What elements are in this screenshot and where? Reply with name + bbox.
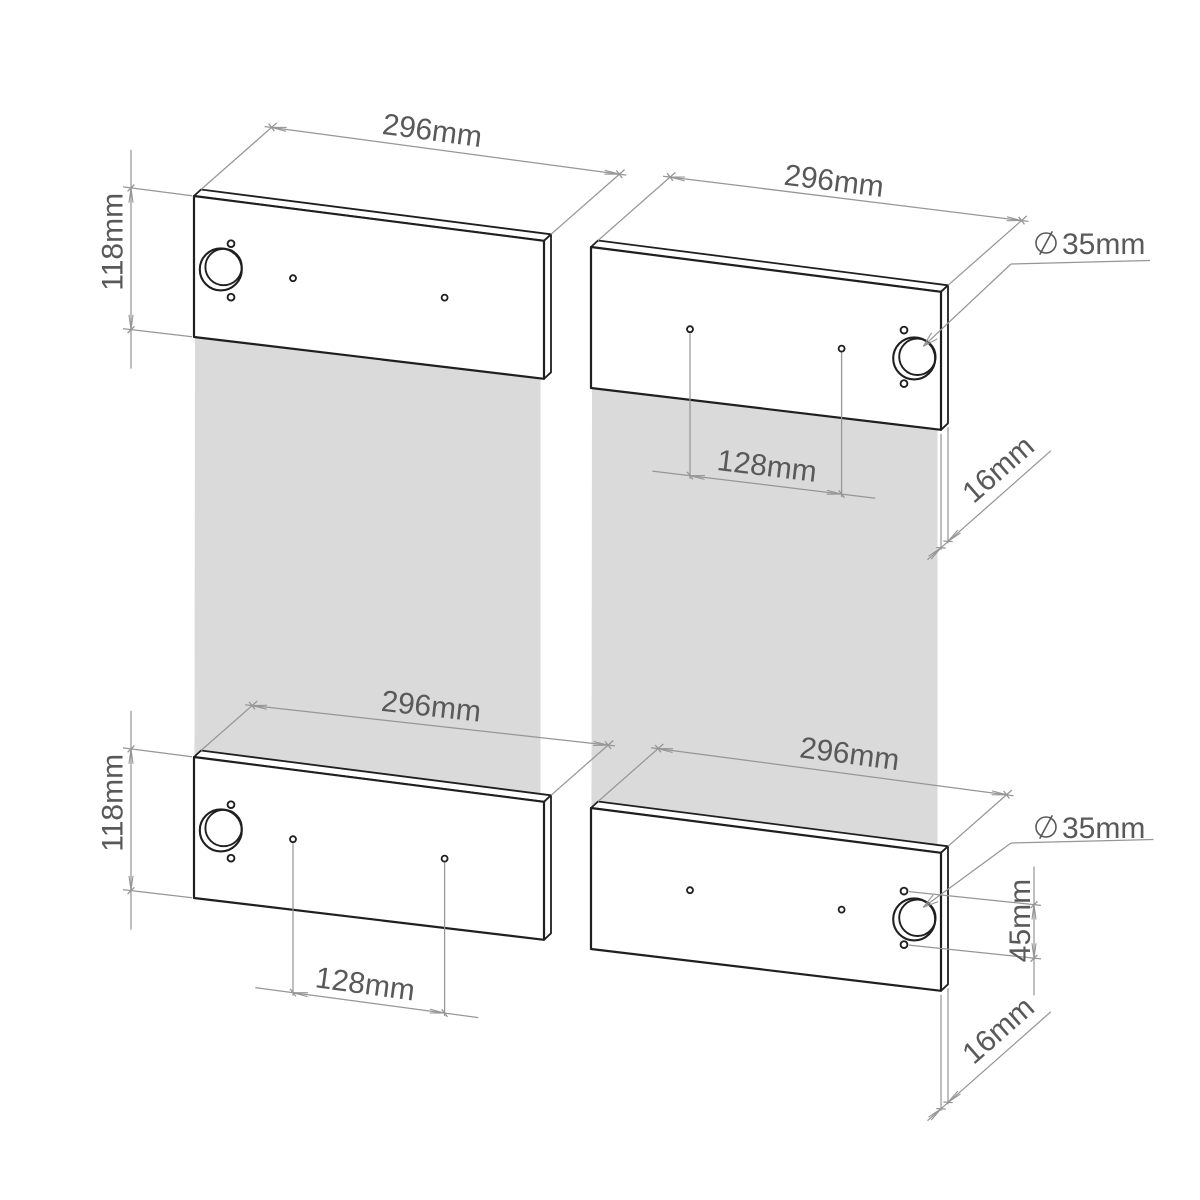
svg-text:118mm: 118mm	[97, 193, 130, 291]
svg-text:35mm: 35mm	[1062, 812, 1145, 845]
svg-text:45mm: 45mm	[1004, 879, 1037, 962]
svg-text:35mm: 35mm	[1062, 228, 1145, 261]
svg-text:118mm: 118mm	[97, 754, 130, 852]
